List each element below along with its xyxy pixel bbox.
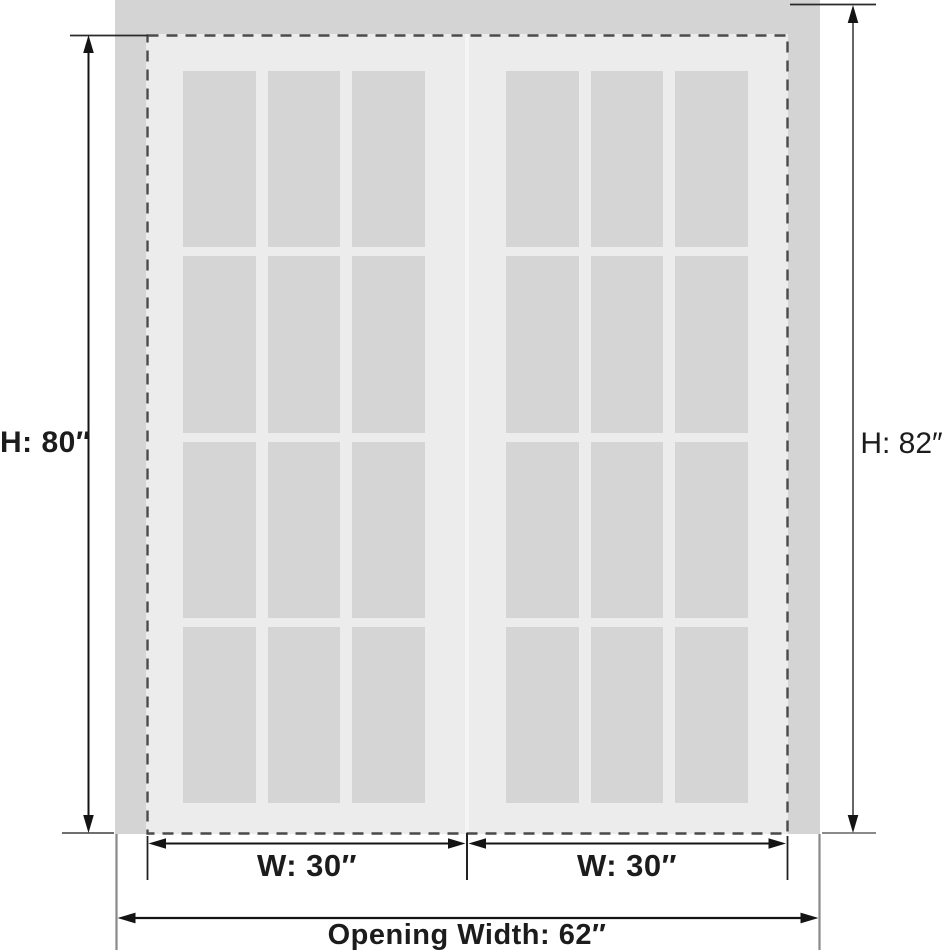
h80-arrow-up-icon xyxy=(83,35,94,53)
glass-pane xyxy=(183,442,256,618)
opening-width-label: Opening Width: 62″ xyxy=(267,919,667,952)
w30-right-arrow-left-icon xyxy=(469,838,487,848)
h82-arrow-down-icon xyxy=(848,815,859,833)
opening-arrow-right-icon xyxy=(801,913,819,924)
right-door-slab xyxy=(469,34,788,834)
glass-pane xyxy=(268,71,341,247)
glass-pane xyxy=(506,256,579,432)
glass-pane xyxy=(591,442,664,618)
h82-arrow-up-icon xyxy=(848,5,859,23)
glass-pane xyxy=(352,627,425,803)
opening-arrow-left-icon xyxy=(118,913,136,924)
h80-arrow-down-icon xyxy=(83,815,94,833)
width-left-door-label: W: 30″ xyxy=(207,848,407,884)
door-diagram-canvas: H: 80″ H: 82″ W: 30″ W: 30″ Opening Widt… xyxy=(0,0,945,952)
glass-pane xyxy=(675,627,748,803)
glass-pane xyxy=(675,442,748,618)
glass-pane xyxy=(268,256,341,432)
glass-pane xyxy=(268,627,341,803)
glass-pane xyxy=(675,71,748,247)
glass-pane xyxy=(268,442,341,618)
glass-pane xyxy=(591,256,664,432)
glass-pane xyxy=(591,627,664,803)
w30-left-arrow-right-icon xyxy=(448,838,466,848)
glass-pane xyxy=(506,442,579,618)
w30-left-arrow-left-icon xyxy=(149,838,167,848)
height-right-label: H: 82″ xyxy=(858,427,945,461)
height-left-label: H: 80″ xyxy=(0,426,86,460)
glass-pane xyxy=(183,71,256,247)
glass-pane xyxy=(506,627,579,803)
glass-pane xyxy=(675,256,748,432)
glass-pane xyxy=(183,627,256,803)
glass-pane xyxy=(506,71,579,247)
glass-pane xyxy=(352,256,425,432)
double-door-unit xyxy=(146,34,788,834)
glass-pane xyxy=(352,71,425,247)
glass-pane xyxy=(352,442,425,618)
width-right-door-label: W: 30″ xyxy=(527,848,727,884)
glass-pane xyxy=(183,256,256,432)
w30-right-arrow-right-icon xyxy=(769,838,787,848)
glass-pane xyxy=(591,71,664,247)
left-door-slab xyxy=(146,34,465,834)
